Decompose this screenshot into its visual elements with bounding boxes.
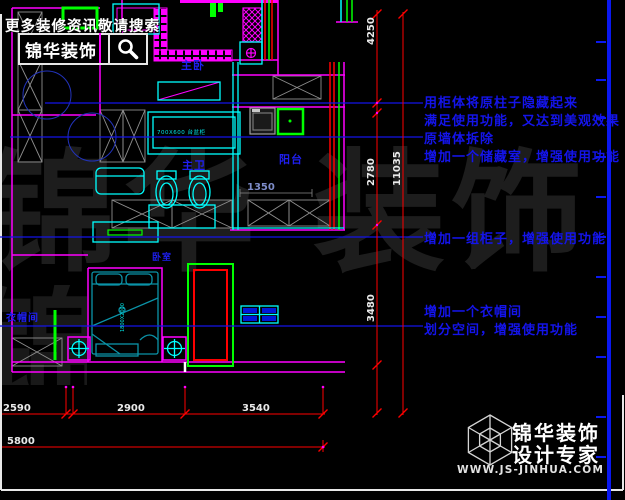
brand-name: 锦华装饰 [20, 37, 108, 62]
room-label-master-bath: 主卫 [182, 157, 206, 173]
annotation-line: 增加一组柜子，增强使用功能 [424, 231, 606, 249]
annotation-line: 增加一个衣帽间 [424, 304, 578, 322]
door-swing-arcs [23, 71, 116, 161]
room-label-master-bedroom: 主卧 [181, 57, 205, 73]
annotation-group-3: 增加一个衣帽间 划分空间，增强使用功能 [424, 304, 578, 340]
floor-drain-icon [247, 49, 256, 58]
dim-4250: 4250 [366, 17, 377, 45]
magnifier-icon [116, 37, 140, 61]
dim-1350: 1350 [247, 182, 275, 193]
room-label-balcony: 阳台 [279, 151, 303, 167]
annotation-line: 用柜体将原柱子隐藏起来 [424, 95, 620, 113]
cube-logo-icon [464, 412, 516, 470]
toilet-2 [189, 171, 210, 208]
annotation-line: 满足使用功能，又达到美观效果 [424, 113, 620, 131]
column-marker-2 [164, 339, 185, 358]
annotation-line: 原墙体拆除 [424, 131, 620, 149]
dim-2590: 2590 [3, 403, 31, 414]
dim-5800: 5800 [7, 436, 35, 447]
annotation-line: 增加一个储藏室，增强使用功能 [424, 149, 620, 167]
cad-floorplan-image: 锦华 装饰 锦华 装饰 [0, 0, 625, 500]
annotation-group-1: 用柜体将原柱子隐藏起来 满足使用功能，又达到美观效果 原墙体拆除 增加一个储藏室… [424, 95, 620, 167]
balcony-window [185, 264, 233, 372]
washing-machine [250, 108, 275, 134]
dimension-lines [2, 10, 408, 453]
hatched-wall-cells [12, 12, 330, 366]
dim-2900: 2900 [117, 403, 145, 414]
dim-3540: 3540 [242, 403, 270, 414]
vanity-label: 700X600 台盆柜 [157, 128, 206, 136]
annotation-group-2: 增加一组柜子，增强使用功能 [424, 231, 606, 249]
company-logo-block: 锦华装饰 设计专家 WWW.JS-JINHUA.COM [455, 405, 620, 490]
room-label-cloakroom: 衣帽间 [6, 309, 39, 324]
block-hatch-wall [154, 8, 262, 61]
column-marker-1 [69, 339, 89, 358]
dim-2780: 2780 [366, 158, 377, 186]
annotation-line: 划分空间，增强使用功能 [424, 322, 578, 340]
brand-search-box[interactable]: 锦华装饰 [18, 33, 148, 65]
footer-url: WWW.JS-JINHUA.COM [457, 464, 604, 476]
bed-size-label: 1800X2000 [120, 303, 126, 332]
dim-11035: 11035 [392, 151, 403, 186]
search-button[interactable] [108, 35, 146, 63]
room-label-bedroom: 卧室 [152, 250, 172, 263]
dim-3480: 3480 [366, 294, 377, 322]
wall-accent-overlay [99, 33, 101, 63]
annotation-leader-lines [0, 103, 423, 326]
